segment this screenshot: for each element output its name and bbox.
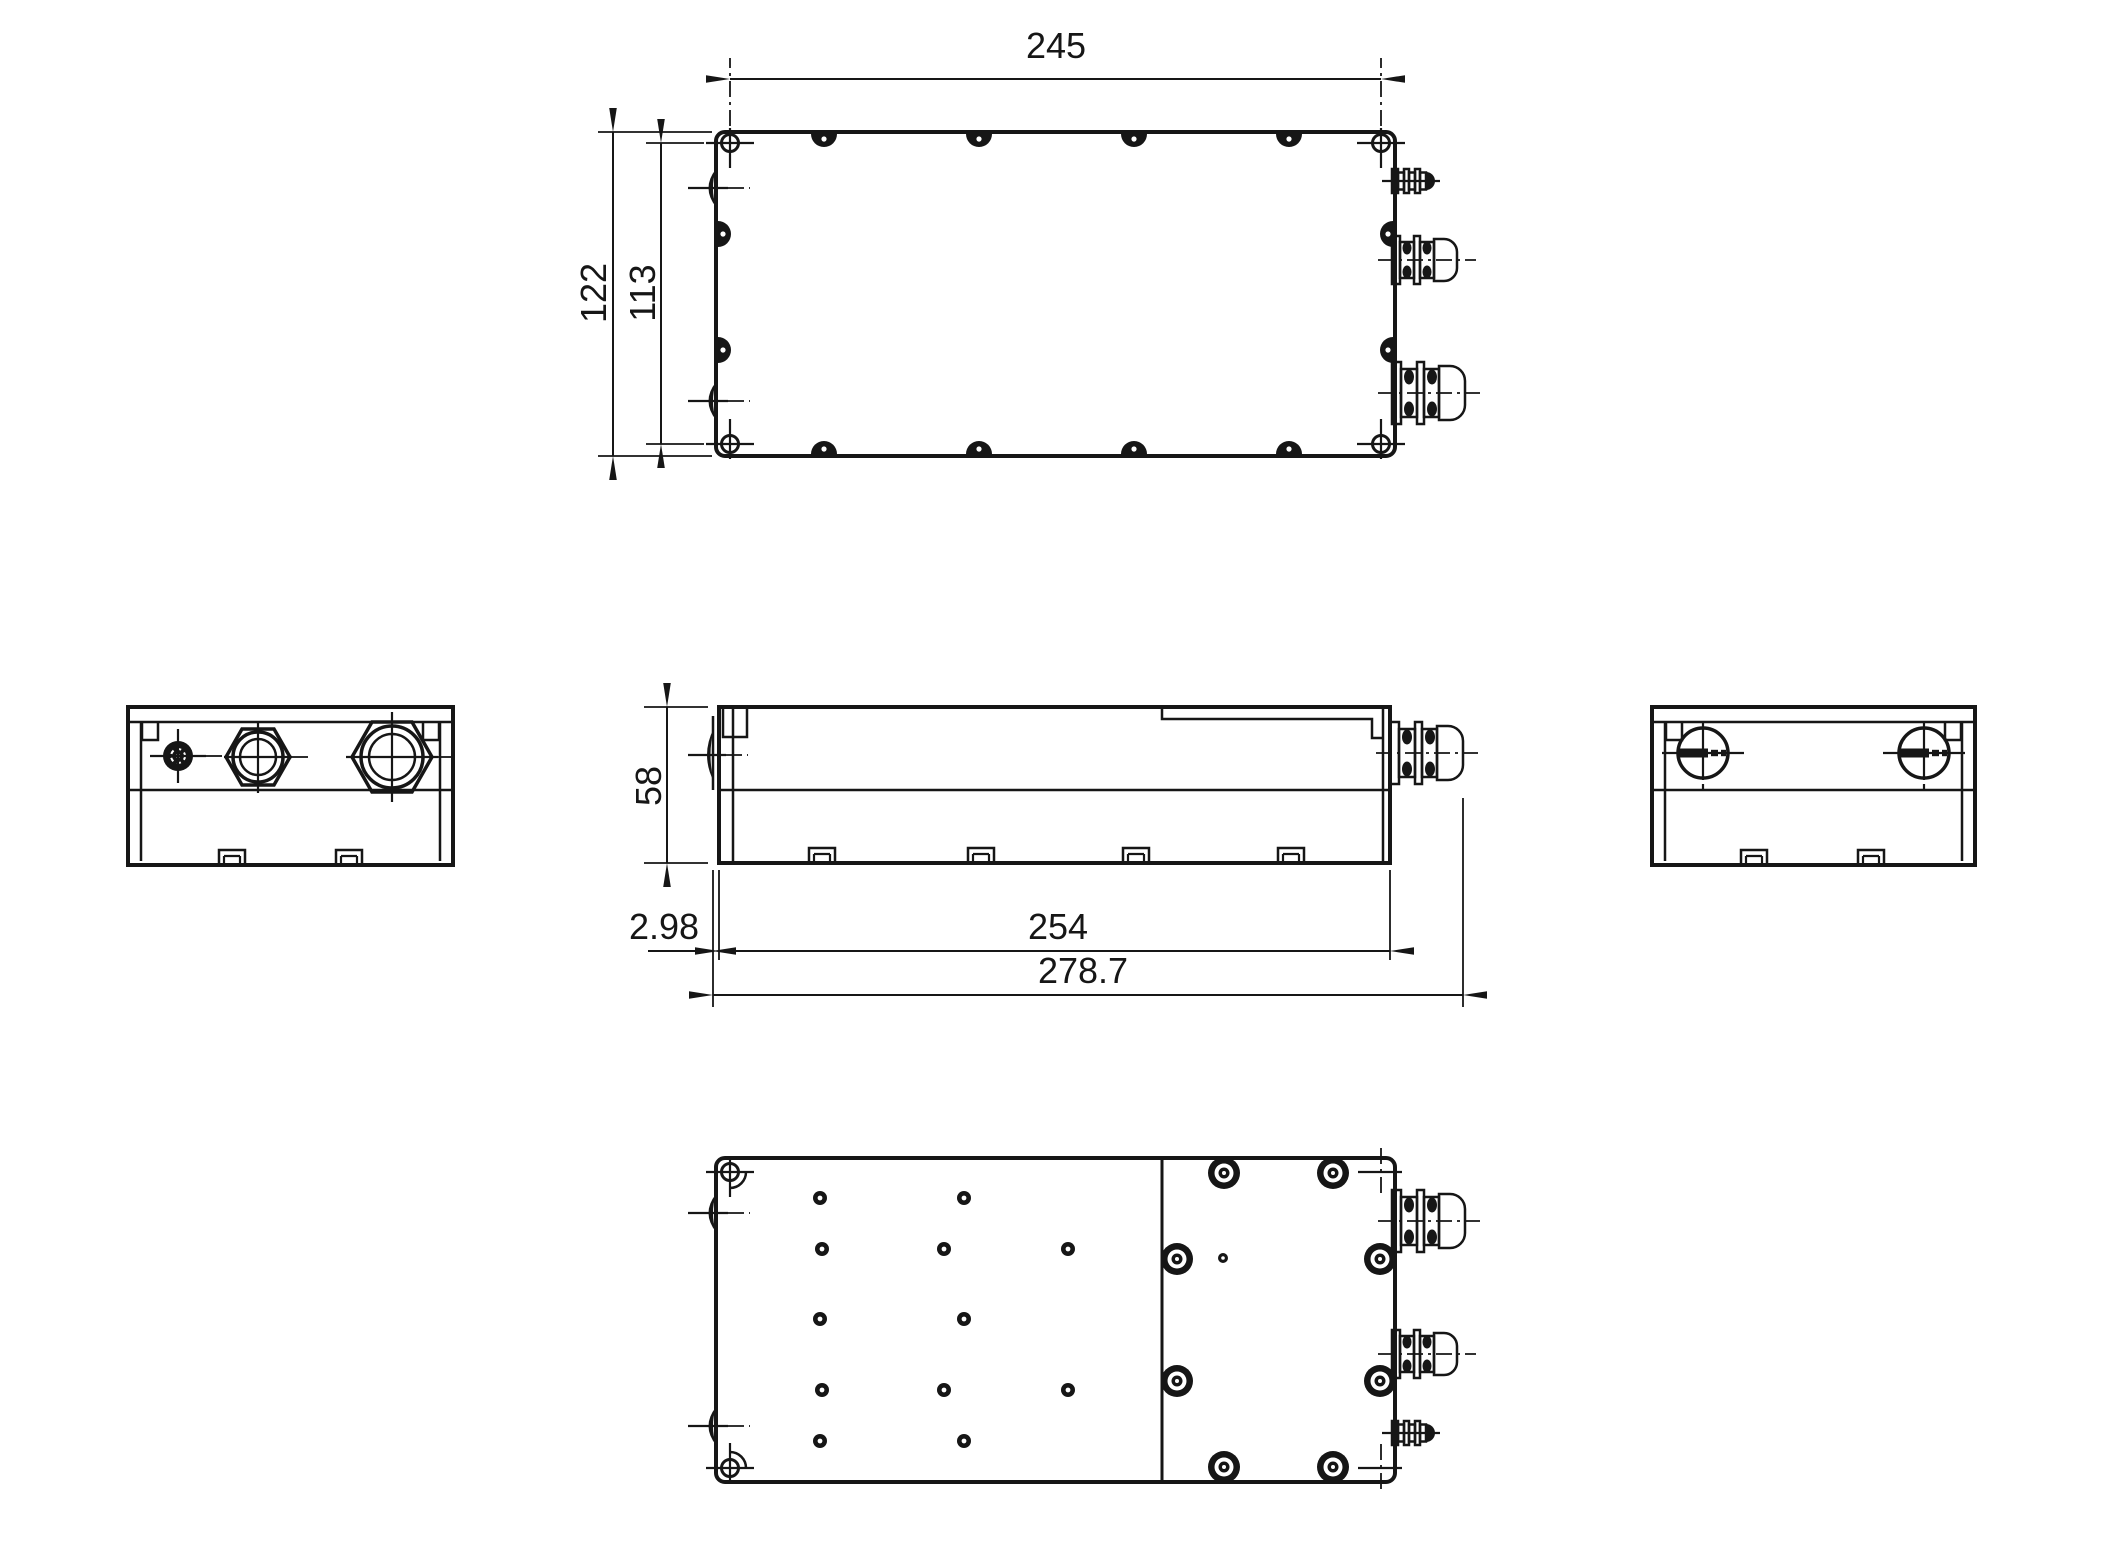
right-view-foot bbox=[1858, 850, 1884, 864]
bottom-view-corner-screws bbox=[706, 1148, 1402, 1492]
front-lid-step bbox=[1162, 707, 1383, 738]
left-end-view bbox=[128, 707, 456, 865]
bottom-view-connectors bbox=[688, 1190, 1480, 1445]
dim-label-depth: 122 bbox=[573, 263, 614, 323]
left-view-medium-gland bbox=[224, 721, 310, 793]
right-end-view bbox=[1652, 707, 1975, 865]
dim-label-lip-offset: 2.98 bbox=[629, 906, 699, 947]
left-view-notch-right bbox=[423, 722, 439, 740]
bottom-view bbox=[688, 1148, 1480, 1492]
dim-label-overall-length: 278.7 bbox=[1038, 950, 1128, 991]
dim-245: 245 bbox=[730, 25, 1381, 126]
right-view-vent-plug bbox=[1662, 723, 1744, 790]
top-view: 245 122 113 bbox=[573, 25, 1480, 459]
left-view-small-connector bbox=[150, 729, 224, 783]
engineering-drawing-page: 245 122 113 bbox=[0, 0, 2126, 1559]
right-view-outline bbox=[1652, 707, 1975, 865]
enclosure-five-view-drawing: 245 122 113 bbox=[0, 0, 2126, 1559]
left-view-foot bbox=[219, 850, 245, 864]
dim-label-length: 245 bbox=[1026, 25, 1086, 66]
right-view-inner-walls bbox=[1665, 722, 1962, 861]
front-view-outline bbox=[719, 707, 1390, 863]
bottom-view-cover-screws bbox=[1161, 1157, 1396, 1483]
left-view-notch-left bbox=[142, 722, 158, 740]
top-view-screw-bosses bbox=[718, 134, 1393, 454]
dim-58: 58 bbox=[628, 707, 708, 863]
right-view-notch-left bbox=[1666, 722, 1682, 740]
front-view: 58 2.98 254 278.7 bbox=[628, 707, 1478, 1007]
top-view-corner-screws bbox=[706, 128, 1405, 459]
left-view-foot bbox=[336, 850, 362, 864]
right-view-foot bbox=[1741, 850, 1767, 864]
dim-label-body-length: 254 bbox=[1028, 906, 1088, 947]
right-view-notch-right bbox=[1945, 722, 1961, 740]
top-view-outline bbox=[716, 132, 1395, 456]
dim-254: 254 bbox=[719, 870, 1390, 960]
dim-label-height: 58 bbox=[628, 766, 669, 806]
right-view-vent-plug bbox=[1883, 723, 1965, 790]
front-feet bbox=[809, 848, 1304, 862]
dim-2787: 278.7 bbox=[713, 798, 1463, 1007]
dim-298: 2.98 bbox=[629, 870, 719, 1007]
front-lid-notch-left bbox=[723, 707, 747, 737]
top-view-connectors bbox=[688, 169, 1480, 424]
dim-label-hole-spacing: 113 bbox=[622, 264, 663, 321]
bottom-view-hole-grid bbox=[813, 1191, 1075, 1448]
